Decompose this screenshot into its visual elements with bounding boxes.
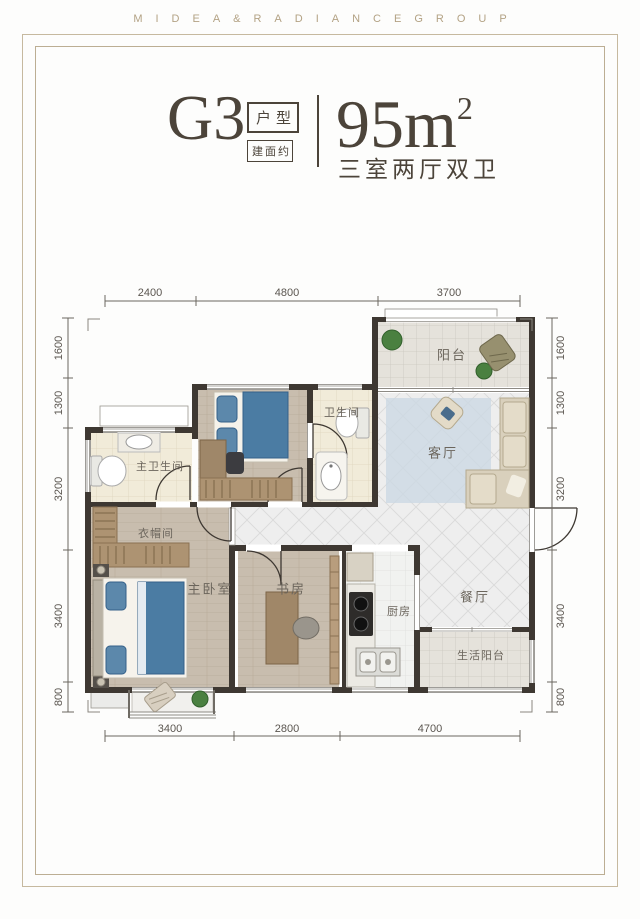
dim-label-bottom-2: 2800 xyxy=(275,723,299,735)
bath-window-ledge xyxy=(100,406,188,426)
wall-mid-horizontal xyxy=(85,502,378,507)
wall-kitchen-west xyxy=(342,545,346,693)
bed-blanket xyxy=(243,392,288,458)
floorplan-drawing xyxy=(0,0,640,919)
room-label-bathroom: 卫生间 xyxy=(324,404,360,420)
room-label-service-balcony: 生活阳台 xyxy=(457,647,505,663)
dim-label-top-2: 4800 xyxy=(275,287,299,299)
pillow xyxy=(217,396,237,422)
wardrobe xyxy=(93,543,189,567)
fridge xyxy=(347,553,373,581)
dim-label-right-5: 800 xyxy=(555,688,567,706)
dim-label-left-5: 800 xyxy=(53,688,65,706)
dim-label-left-1: 1600 xyxy=(53,336,65,360)
dim-label-left-3: 3200 xyxy=(53,477,65,501)
dim-label-right-1: 1600 xyxy=(555,336,567,360)
entry-door xyxy=(535,508,577,550)
room-label-dining-room: 餐厅 xyxy=(460,587,490,606)
dim-left xyxy=(62,318,74,712)
toilet xyxy=(98,456,126,486)
hallway-floor xyxy=(235,505,378,548)
dim-right xyxy=(546,318,558,712)
room-label-cloakroom: 衣帽间 xyxy=(138,525,174,541)
sink xyxy=(126,435,152,449)
bed-headboard xyxy=(93,580,103,676)
room-label-master-bedroom: 主卧室 xyxy=(187,579,232,598)
plant-icon xyxy=(192,691,208,707)
dim-label-top-3: 3700 xyxy=(437,287,461,299)
dim-label-right-3: 3200 xyxy=(555,477,567,501)
wall-step-left xyxy=(192,384,198,439)
floorplan-page: MIDEA&RADIANCEGROUP G3 户型 建面约 95m2 三室两厅双… xyxy=(0,0,640,919)
wall-balcony-west xyxy=(372,317,378,390)
room-label-living-room: 客厅 xyxy=(428,443,458,462)
desk-chair xyxy=(226,452,244,474)
room-label-balcony: 阳台 xyxy=(437,345,467,364)
dim-label-top-1: 2400 xyxy=(138,287,162,299)
room-label-master-bathroom: 主卫生间 xyxy=(136,458,184,474)
dim-label-right-4: 3400 xyxy=(555,604,567,628)
plant-icon xyxy=(382,330,402,350)
wall-masterbed-east xyxy=(229,545,235,693)
wall-right xyxy=(529,317,535,693)
pillow xyxy=(106,582,126,610)
room-label-kitchen: 厨房 xyxy=(387,603,411,619)
room-label-study: 书房 xyxy=(276,579,306,598)
dim-label-bottom-1: 3400 xyxy=(158,723,182,735)
chair xyxy=(293,617,319,639)
pillow xyxy=(106,646,126,674)
dim-label-left-2: 1300 xyxy=(53,391,65,415)
wall-living-west xyxy=(372,390,378,505)
dim-label-right-2: 1300 xyxy=(555,391,567,415)
dim-label-bottom-3: 4700 xyxy=(418,723,442,735)
dim-label-left-4: 3400 xyxy=(53,604,65,628)
